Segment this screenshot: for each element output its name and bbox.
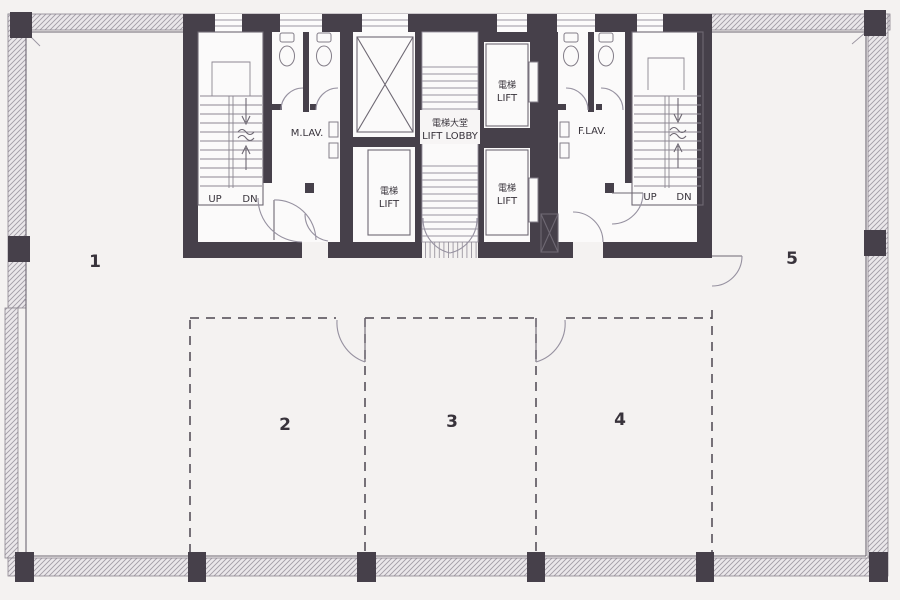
lift-right-top-label-zh: 電梯 bbox=[498, 79, 516, 91]
lift-left-label-en: LIFT bbox=[379, 199, 400, 210]
unit-2-label: 2 bbox=[279, 415, 291, 435]
lift-lobby-label-zh: 電梯大堂 bbox=[432, 117, 468, 129]
toilet bbox=[317, 33, 332, 66]
lift-right-top-label-en: LIFT bbox=[497, 93, 518, 104]
lift-right-bottom-label-en: LIFT bbox=[497, 196, 518, 207]
mens-lav-label: M.LAV. bbox=[291, 128, 324, 139]
toilet bbox=[599, 33, 614, 66]
unit-3-label: 3 bbox=[446, 412, 458, 432]
womens-lav-label: F.LAV. bbox=[578, 126, 606, 137]
stair-right-up-label: UP bbox=[643, 192, 656, 203]
unit3-4-door-swing bbox=[536, 320, 565, 362]
lift-left-label-zh: 電梯 bbox=[380, 185, 398, 197]
unit-1-label: 1 bbox=[89, 252, 101, 272]
toilet bbox=[564, 33, 579, 66]
lobby-entrance-hatch bbox=[425, 242, 477, 258]
floor-plan-svg: UP DN UP DN M.LAV. bbox=[0, 0, 900, 600]
unit2-3-door-swing bbox=[337, 320, 365, 362]
floor-plan-page: UP DN UP DN M.LAV. bbox=[0, 0, 900, 600]
unit-4-label: 4 bbox=[614, 410, 626, 430]
lift-lobby-label-en: LIFT LOBBY bbox=[422, 131, 479, 142]
stair-left-down-label: DN bbox=[242, 194, 257, 205]
toilet bbox=[280, 33, 295, 66]
unit-labels: 1 2 3 4 5 bbox=[89, 249, 798, 435]
lift-right-bottom-label-zh: 電梯 bbox=[498, 182, 516, 194]
unit-5-label: 5 bbox=[786, 249, 798, 269]
stair-right-down-label: DN bbox=[676, 192, 691, 203]
unit5-door-swing bbox=[712, 256, 742, 286]
stair-left-up-label: UP bbox=[208, 194, 221, 205]
